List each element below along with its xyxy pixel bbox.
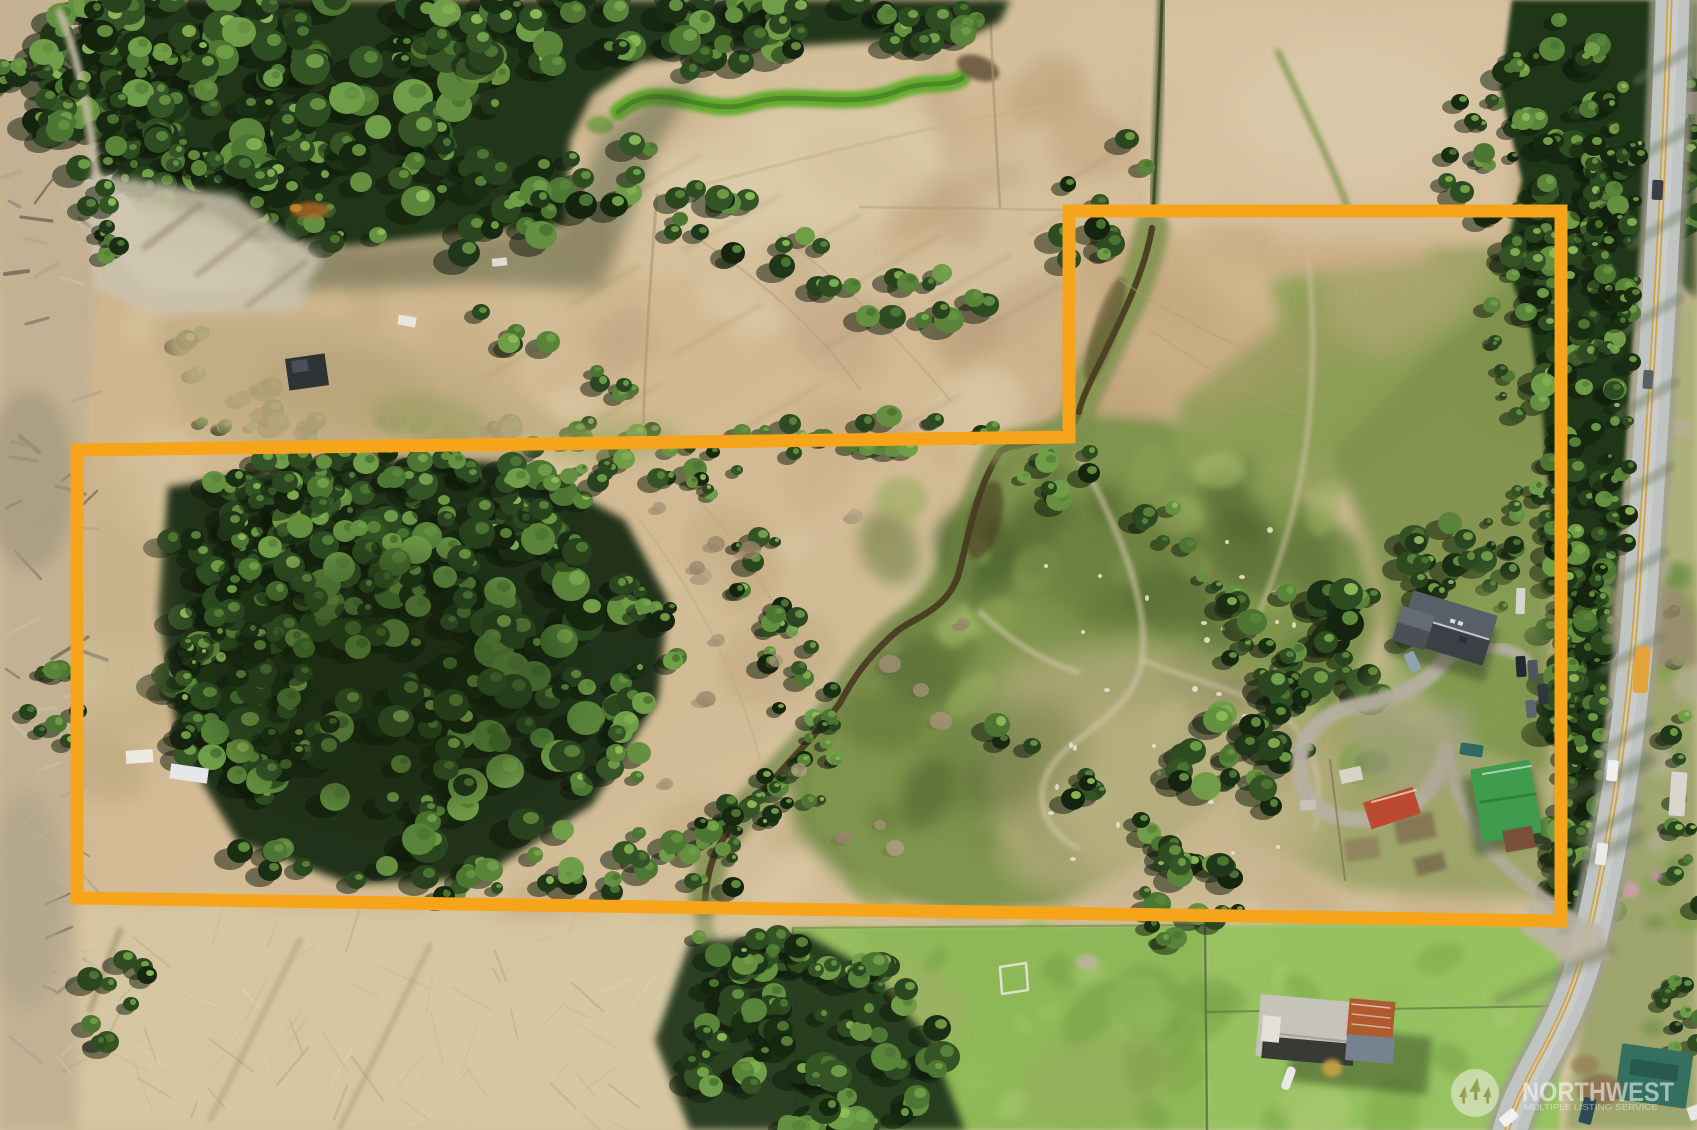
svg-text:MULTIPLE LISTING SERVICE: MULTIPLE LISTING SERVICE — [1524, 1103, 1658, 1112]
